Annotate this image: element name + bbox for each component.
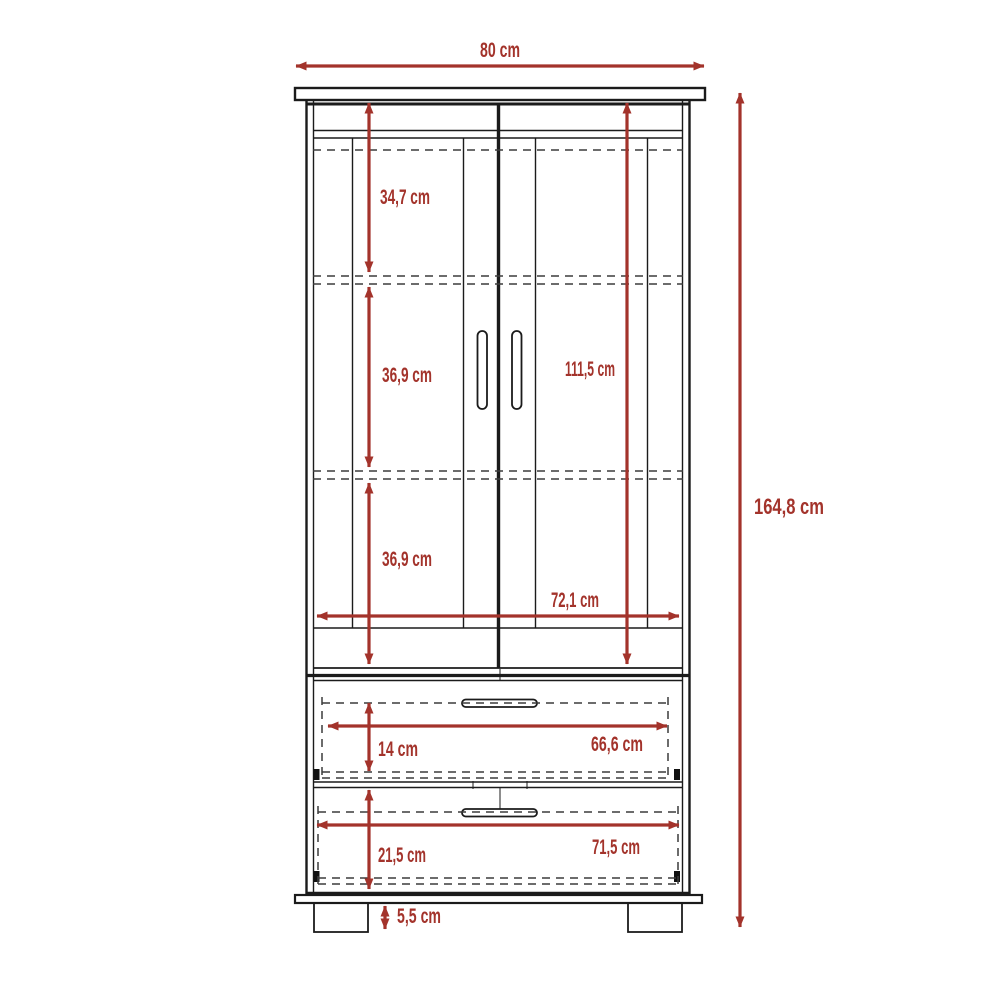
label-drawer2-width: 71,5 cm xyxy=(592,836,640,859)
label-overall-height: 164,8 cm xyxy=(754,494,824,519)
label-overall-width: 80 cm xyxy=(480,39,520,62)
cabinet-structure xyxy=(295,88,705,932)
left-foot xyxy=(314,903,368,932)
base-board xyxy=(295,895,702,903)
label-drawer1-height: 14 cm xyxy=(378,738,418,761)
label-drawer1-width: 66,6 cm xyxy=(591,733,643,756)
dimension-arrows xyxy=(296,66,740,929)
wardrobe-dimension-diagram: 80 cm 164,8 cm 34,7 cm 36,9 cm 111,5 cm … xyxy=(0,0,1000,1000)
label-bottom-compartment: 36,9 cm xyxy=(382,548,432,571)
drawer1-slide-left xyxy=(314,769,320,780)
label-top-compartment: 34,7 cm xyxy=(380,186,430,209)
right-foot xyxy=(628,903,682,932)
diagram-svg: 80 cm 164,8 cm 34,7 cm 36,9 cm 111,5 cm … xyxy=(0,0,1000,1000)
label-middle-compartment: 36,9 cm xyxy=(382,364,432,387)
left-door-handle xyxy=(478,331,488,409)
dimension-labels: 80 cm 164,8 cm 34,7 cm 36,9 cm 111,5 cm … xyxy=(378,39,824,928)
drawer1-slide-right xyxy=(674,769,680,780)
label-drawer2-height: 21,5 cm xyxy=(378,844,426,867)
top-board xyxy=(295,88,705,100)
label-base-height: 5,5 cm xyxy=(397,905,441,928)
label-door-height: 111,5 cm xyxy=(565,358,615,381)
drawer2-slide-right xyxy=(674,871,680,882)
right-door-handle xyxy=(512,331,522,409)
label-interior-width: 72,1 cm xyxy=(551,589,599,612)
